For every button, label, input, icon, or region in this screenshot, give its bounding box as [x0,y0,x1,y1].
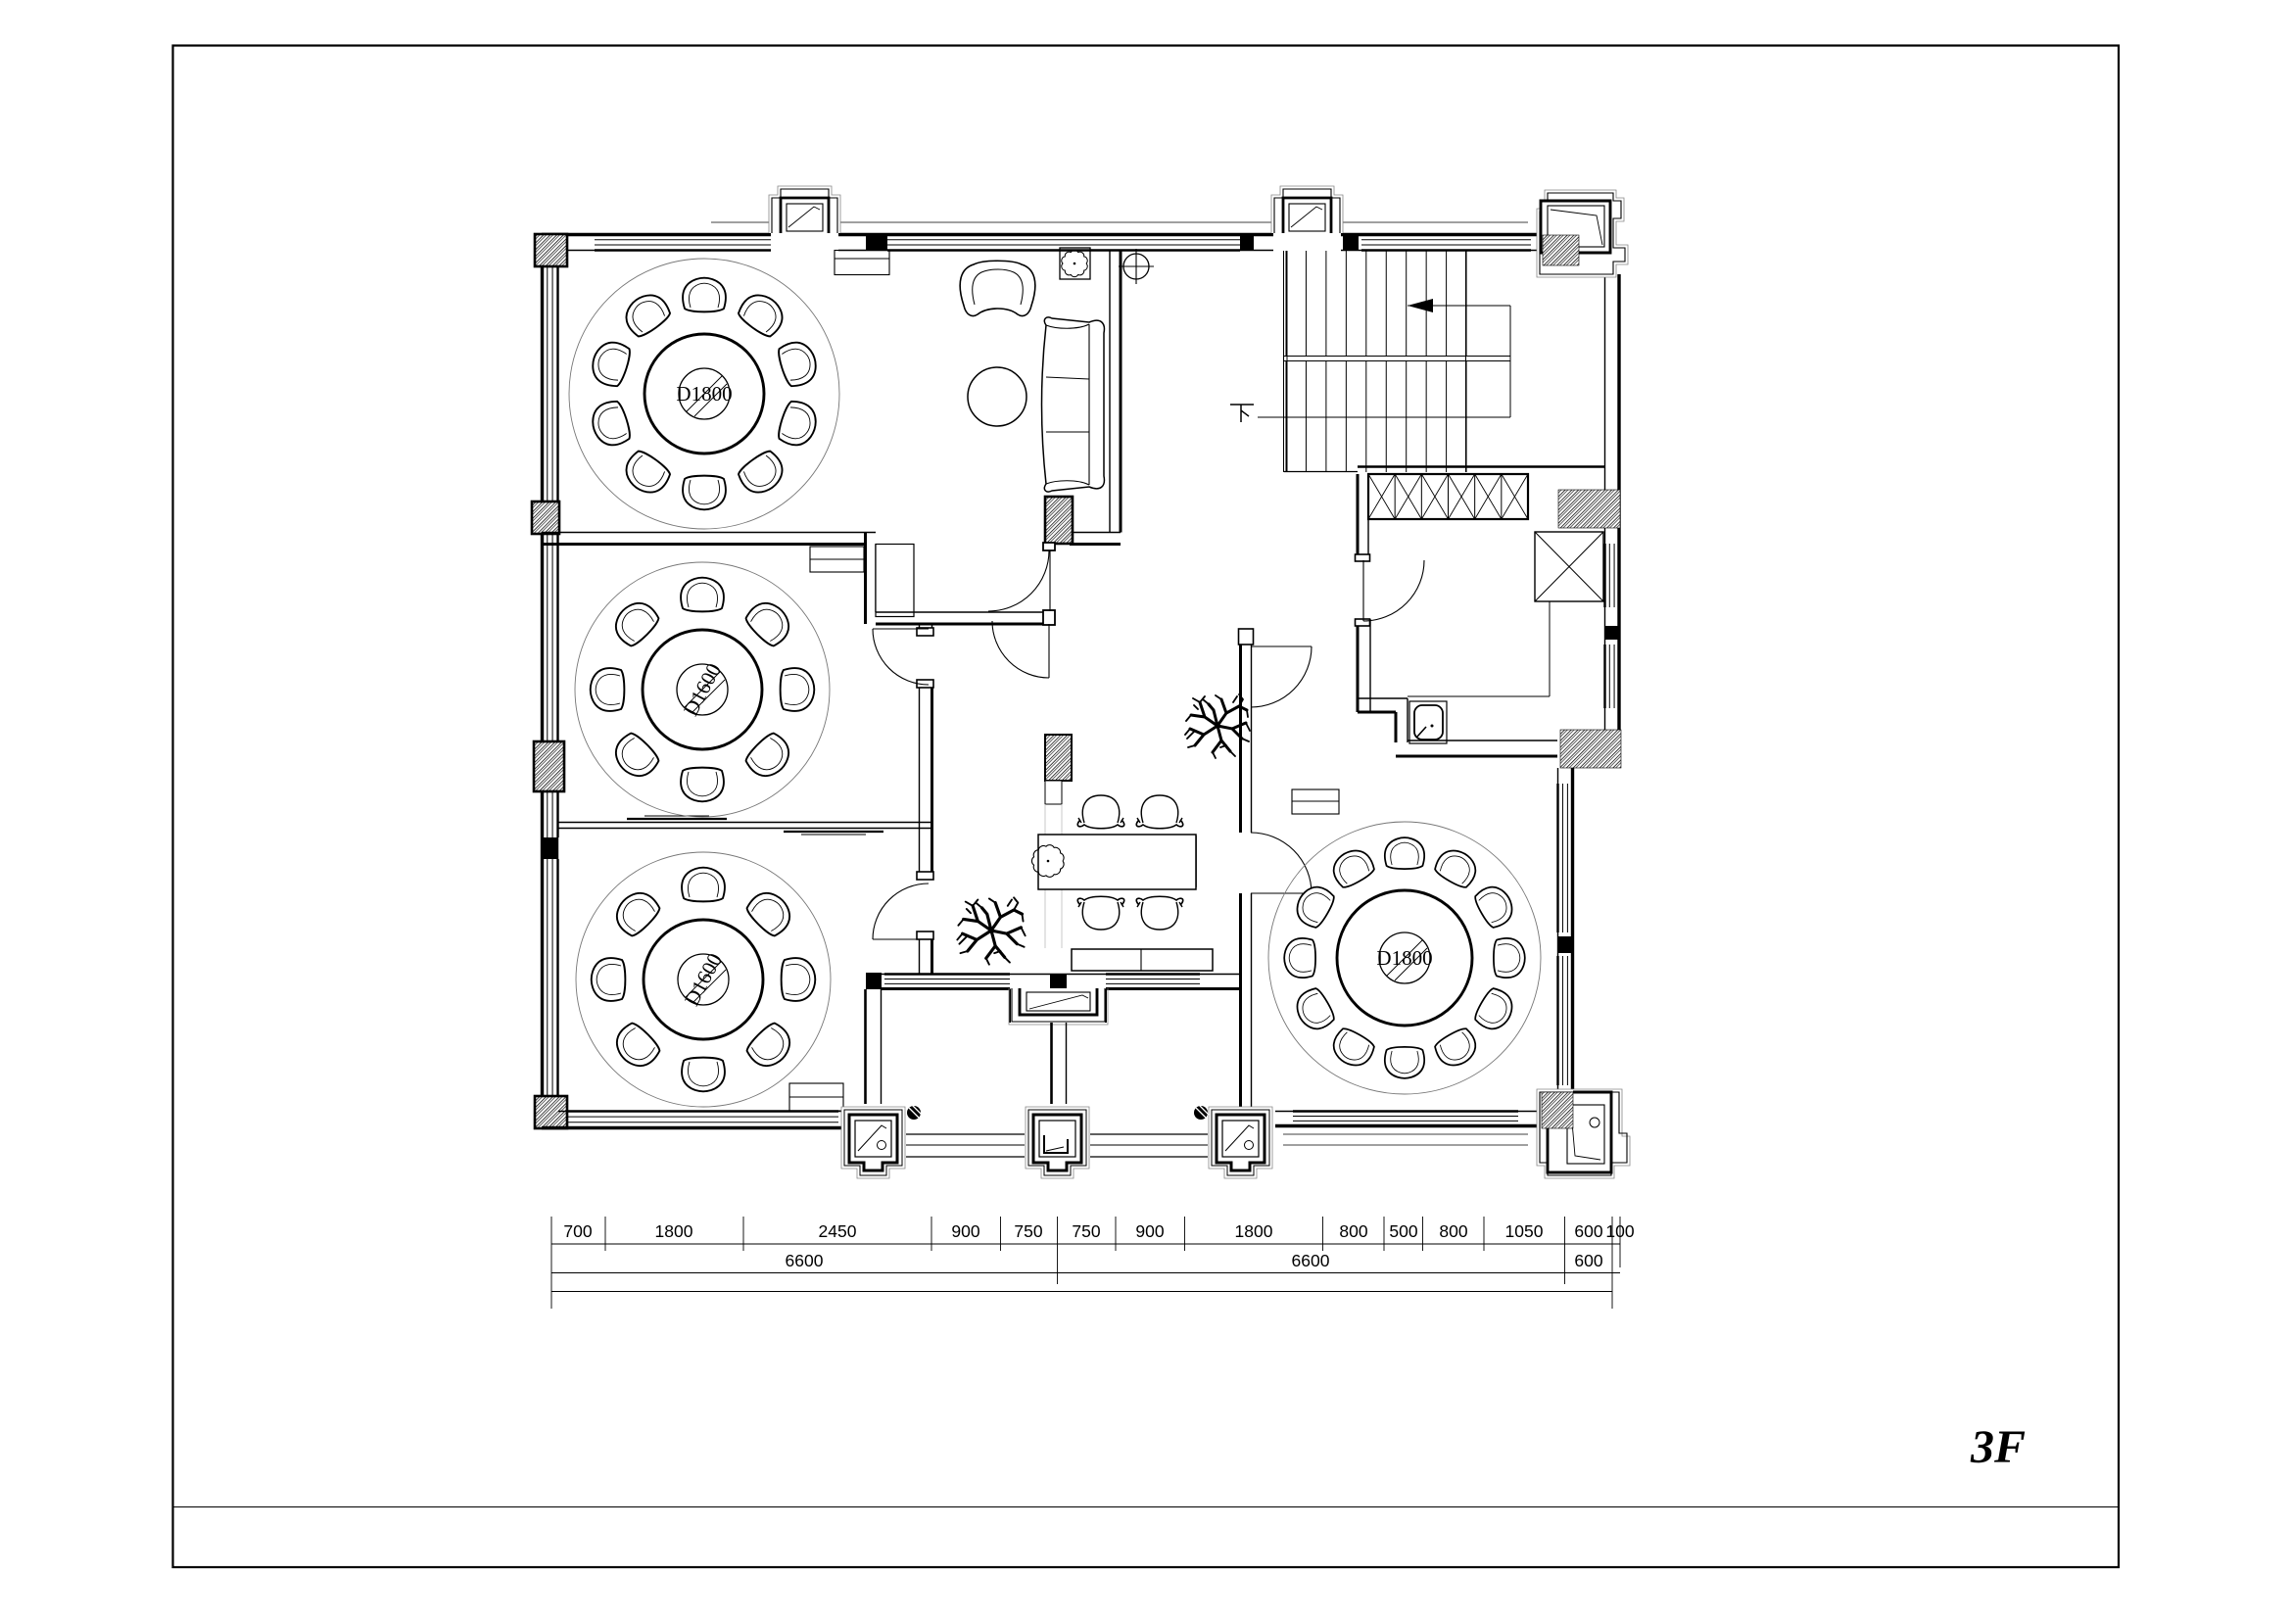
svg-text:800: 800 [1439,1221,1467,1241]
svg-text:750: 750 [1072,1221,1100,1241]
svg-text:D1800: D1800 [676,382,732,406]
svg-text:900: 900 [1135,1221,1164,1241]
svg-text:700: 700 [563,1221,592,1241]
svg-text:2450: 2450 [819,1221,857,1241]
svg-text:1050: 1050 [1505,1221,1544,1241]
svg-text:800: 800 [1339,1221,1367,1241]
svg-text:750: 750 [1014,1221,1042,1241]
svg-text:3F: 3F [1970,1421,2026,1473]
svg-text:D1800: D1800 [1376,946,1432,970]
svg-text:100: 100 [1605,1221,1634,1241]
svg-text:1800: 1800 [655,1221,693,1241]
svg-text:1800: 1800 [1235,1221,1273,1241]
svg-text:6600: 6600 [1292,1251,1330,1270]
svg-text:500: 500 [1389,1221,1417,1241]
svg-text:600: 600 [1574,1221,1602,1241]
svg-text:600: 600 [1574,1251,1602,1270]
svg-text:900: 900 [951,1221,979,1241]
svg-text:6600: 6600 [786,1251,824,1270]
